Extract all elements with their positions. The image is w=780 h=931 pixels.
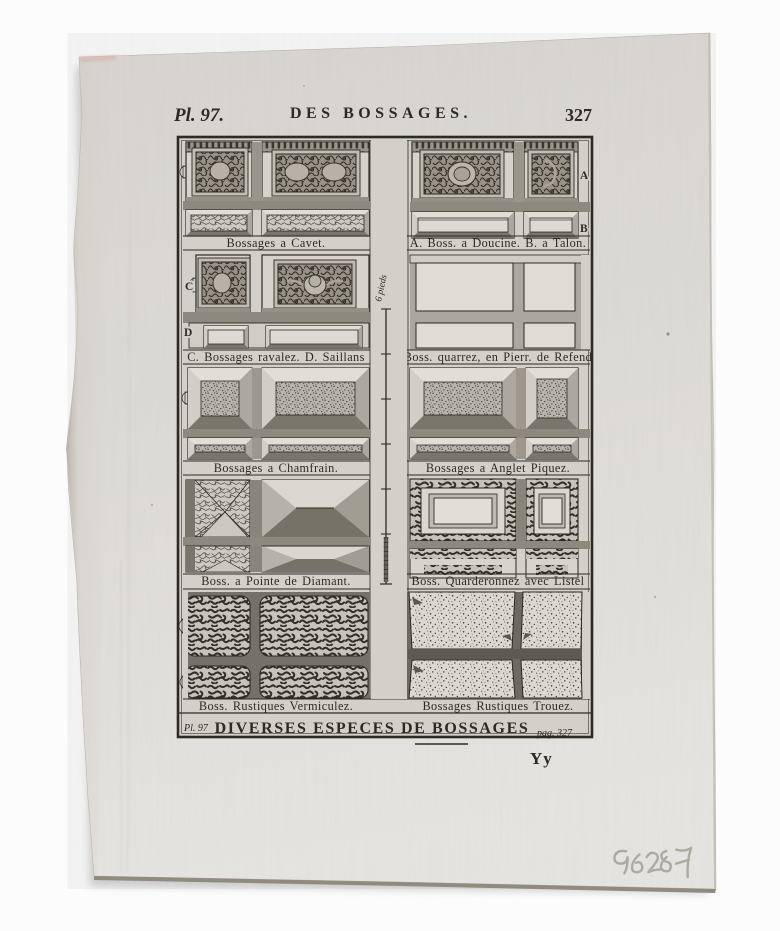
svg-text:Bossages a Anglet Piquez.: Bossages a Anglet Piquez. xyxy=(426,461,570,475)
svg-text:Boss. quarrez, en Pierr. de Re: Boss. quarrez, en Pierr. de Refend xyxy=(404,350,592,364)
svg-text:B: B xyxy=(580,223,588,235)
svg-text:Bossages Rustiques Trouez.: Bossages Rustiques Trouez. xyxy=(422,699,573,713)
svg-text:DIVERSES ESPECES DE BOSSAGES: DIVERSES ESPECES DE BOSSAGES xyxy=(215,720,530,737)
svg-text:pag. 327: pag. 327 xyxy=(536,728,573,739)
svg-text:Bossages a Chamfrain.: Bossages a Chamfrain. xyxy=(214,461,338,475)
svg-text:D: D xyxy=(184,327,192,339)
svg-text:Boss. Rustiques Vermiculez.: Boss. Rustiques Vermiculez. xyxy=(199,699,353,713)
svg-text:DES BOSSAGES.: DES BOSSAGES. xyxy=(290,105,472,122)
svg-text:A: A xyxy=(580,170,589,182)
svg-text:Boss. Quarderonnez avec Listel: Boss. Quarderonnez avec Listel xyxy=(412,574,585,588)
svg-text:C. Bossages ravalez. D. Sailla: C. Bossages ravalez. D. Saillans xyxy=(187,350,365,364)
svg-text:Yy: Yy xyxy=(530,749,553,768)
svg-text:Pl. 97.: Pl. 97. xyxy=(173,105,224,126)
svg-text:C: C xyxy=(185,281,193,293)
svg-text:Bossages a Cavet.: Bossages a Cavet. xyxy=(227,236,326,250)
svg-text:327: 327 xyxy=(565,105,592,125)
svg-text:A. Boss. a Doucine. B. a Talon: A. Boss. a Doucine. B. a Talon. xyxy=(410,236,586,250)
svg-text:Boss. a Pointe de Diamant.: Boss. a Pointe de Diamant. xyxy=(201,574,351,588)
svg-text:Pl. 97: Pl. 97 xyxy=(183,723,209,734)
